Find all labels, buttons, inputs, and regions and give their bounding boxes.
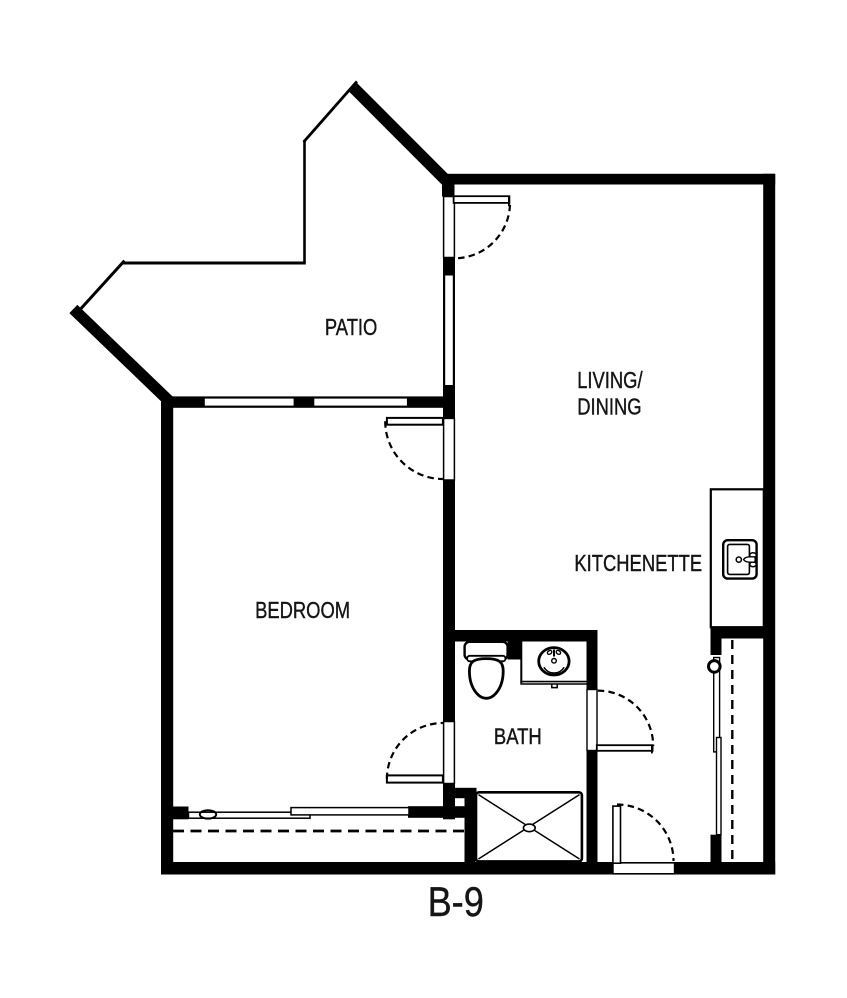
svg-text:BATH: BATH	[494, 726, 542, 750]
svg-text:B-9: B-9	[428, 879, 484, 925]
svg-text:DINING: DINING	[577, 395, 641, 420]
svg-text:BEDROOM: BEDROOM	[255, 598, 350, 623]
svg-text:PATIO: PATIO	[325, 315, 377, 340]
svg-text:KITCHENETTE: KITCHENETTE	[574, 551, 702, 576]
svg-text:LIVING/: LIVING/	[577, 368, 643, 393]
